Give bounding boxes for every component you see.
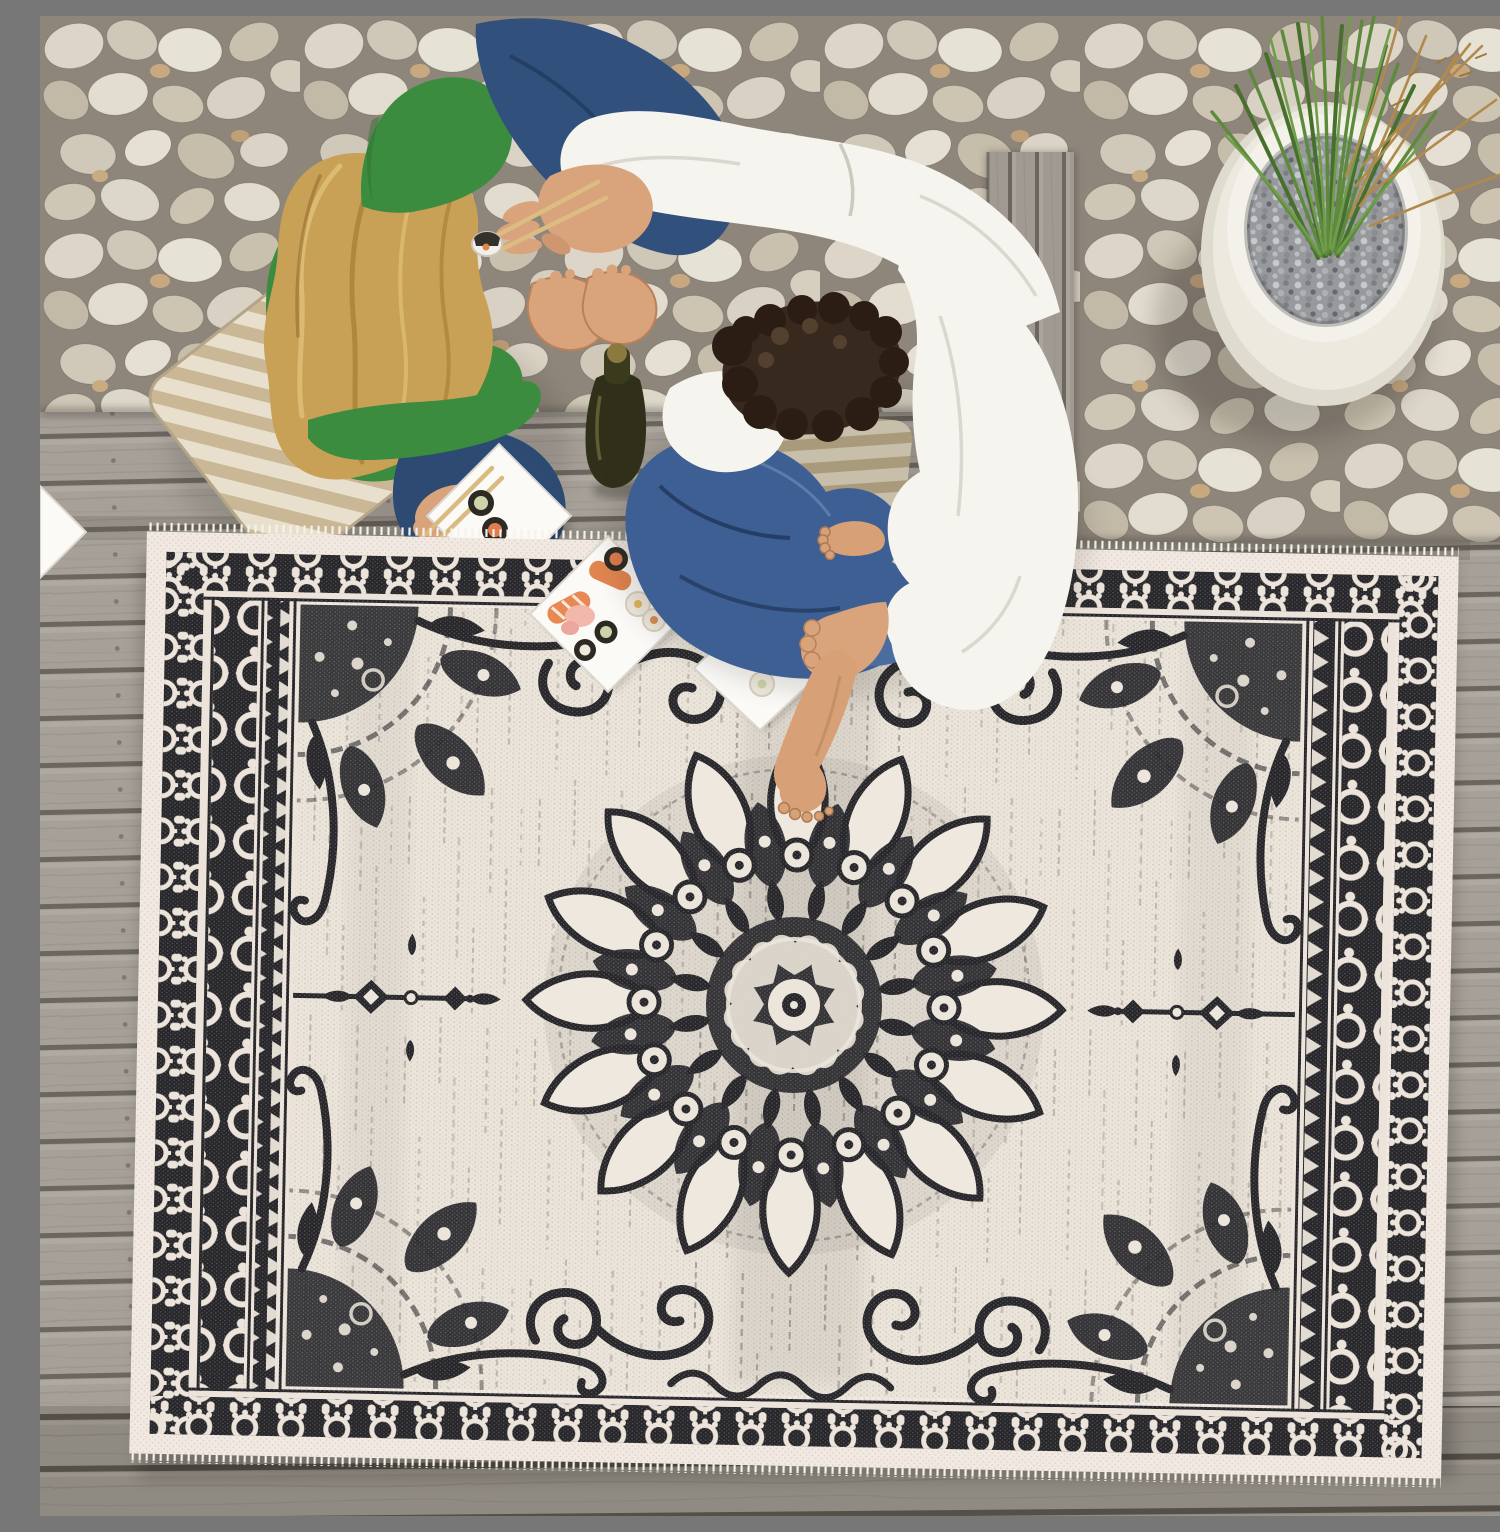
product-photo: Overhead view of a couple sharing sushi … <box>40 16 1500 1516</box>
sushi-bite <box>472 232 502 256</box>
scene-canvas: Overhead view of a couple sharing sushi … <box>40 16 1500 1516</box>
